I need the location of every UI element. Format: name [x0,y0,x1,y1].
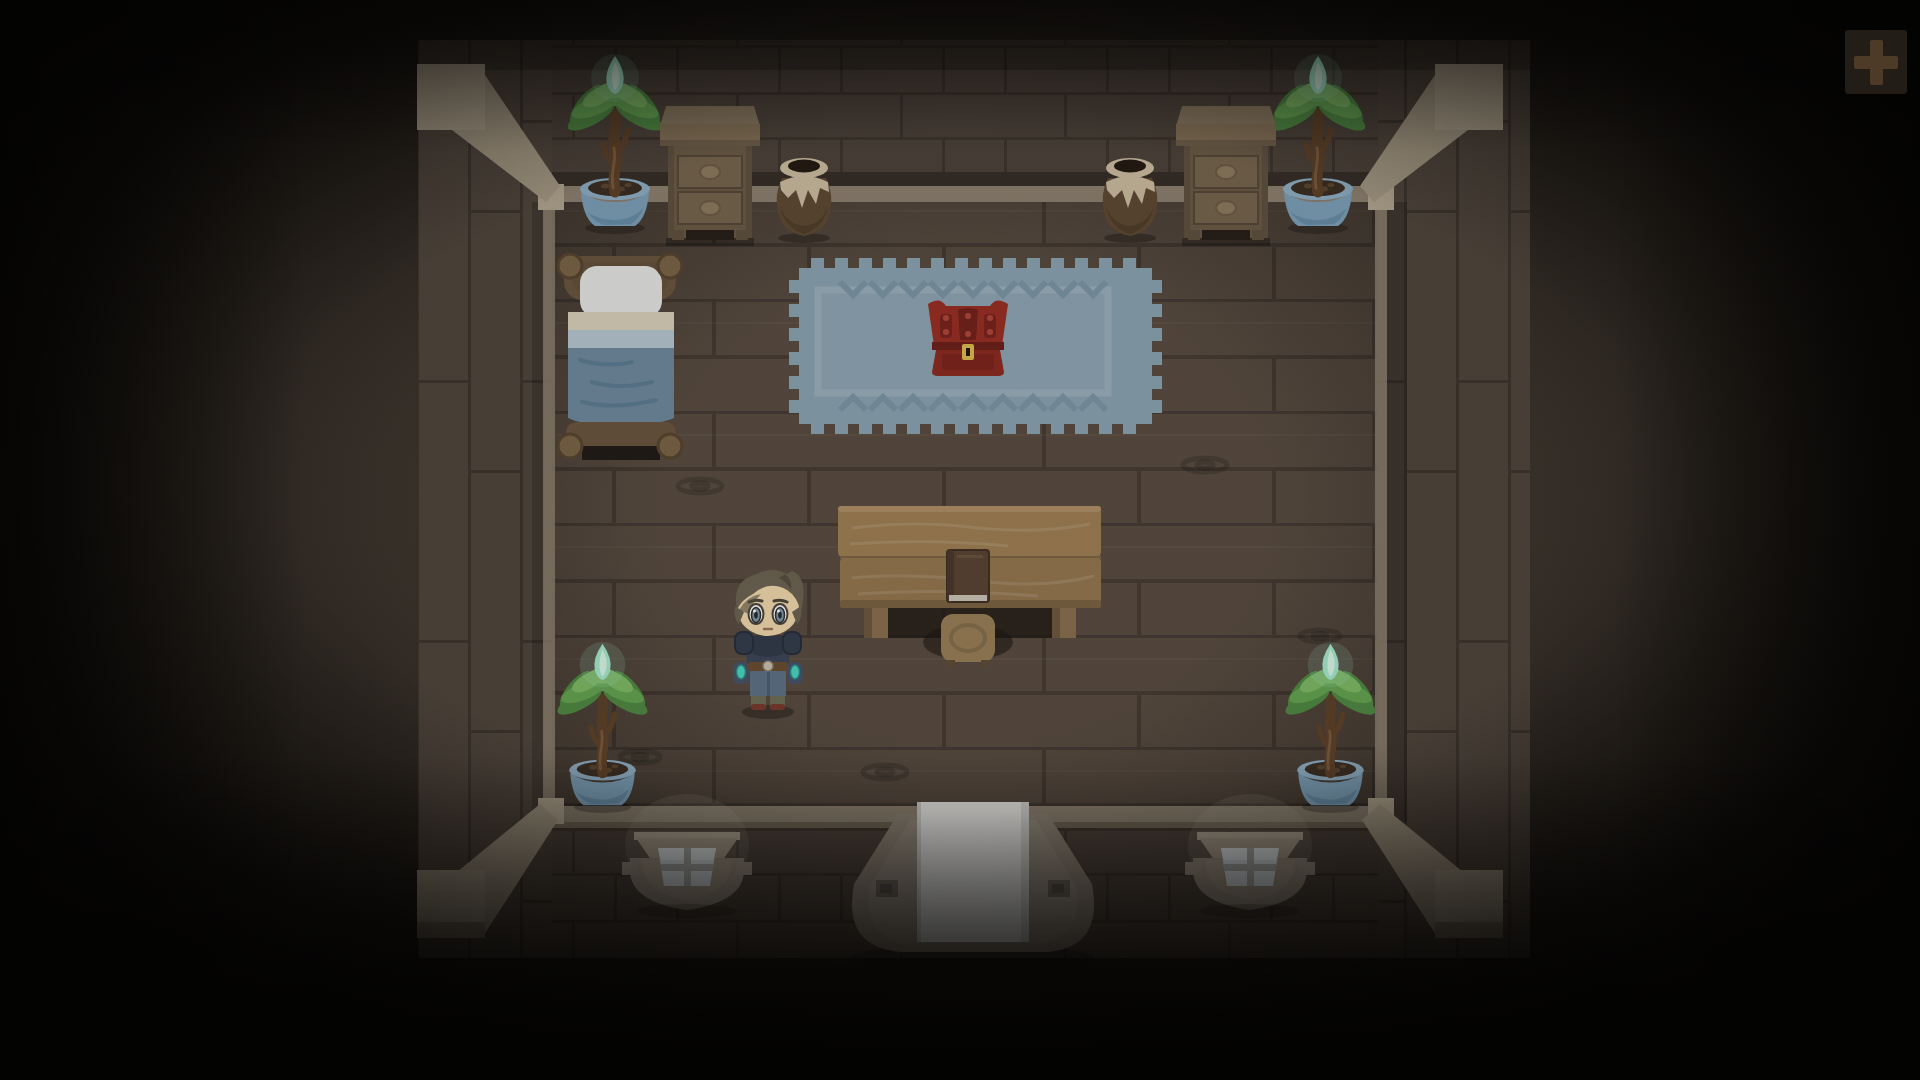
chest[interactable] [928,300,1008,376]
bed[interactable] [558,254,682,460]
player-shoulder [735,632,753,654]
wall-top-shade [418,40,1530,70]
dresser-left[interactable] [660,106,760,246]
trim-left [543,186,555,822]
game-viewport [0,0,1920,1080]
gem [791,665,800,679]
book[interactable] [947,550,989,602]
left-wall-shadow [532,202,544,822]
player-shoulder [783,632,801,654]
pillow [580,266,662,318]
plus-icon [1870,40,1883,85]
right-wall-shadow [1387,202,1407,822]
trim-right [1375,186,1387,822]
sheet [568,330,674,350]
sheet-fold [568,312,674,332]
gem [737,665,746,679]
zoom-in-button[interactable] [1845,30,1907,94]
stool[interactable] [941,614,995,667]
room-scene [0,0,1920,1080]
dresser-right[interactable] [1176,106,1276,246]
book-pages [949,595,987,601]
door-panel[interactable] [917,802,1029,942]
